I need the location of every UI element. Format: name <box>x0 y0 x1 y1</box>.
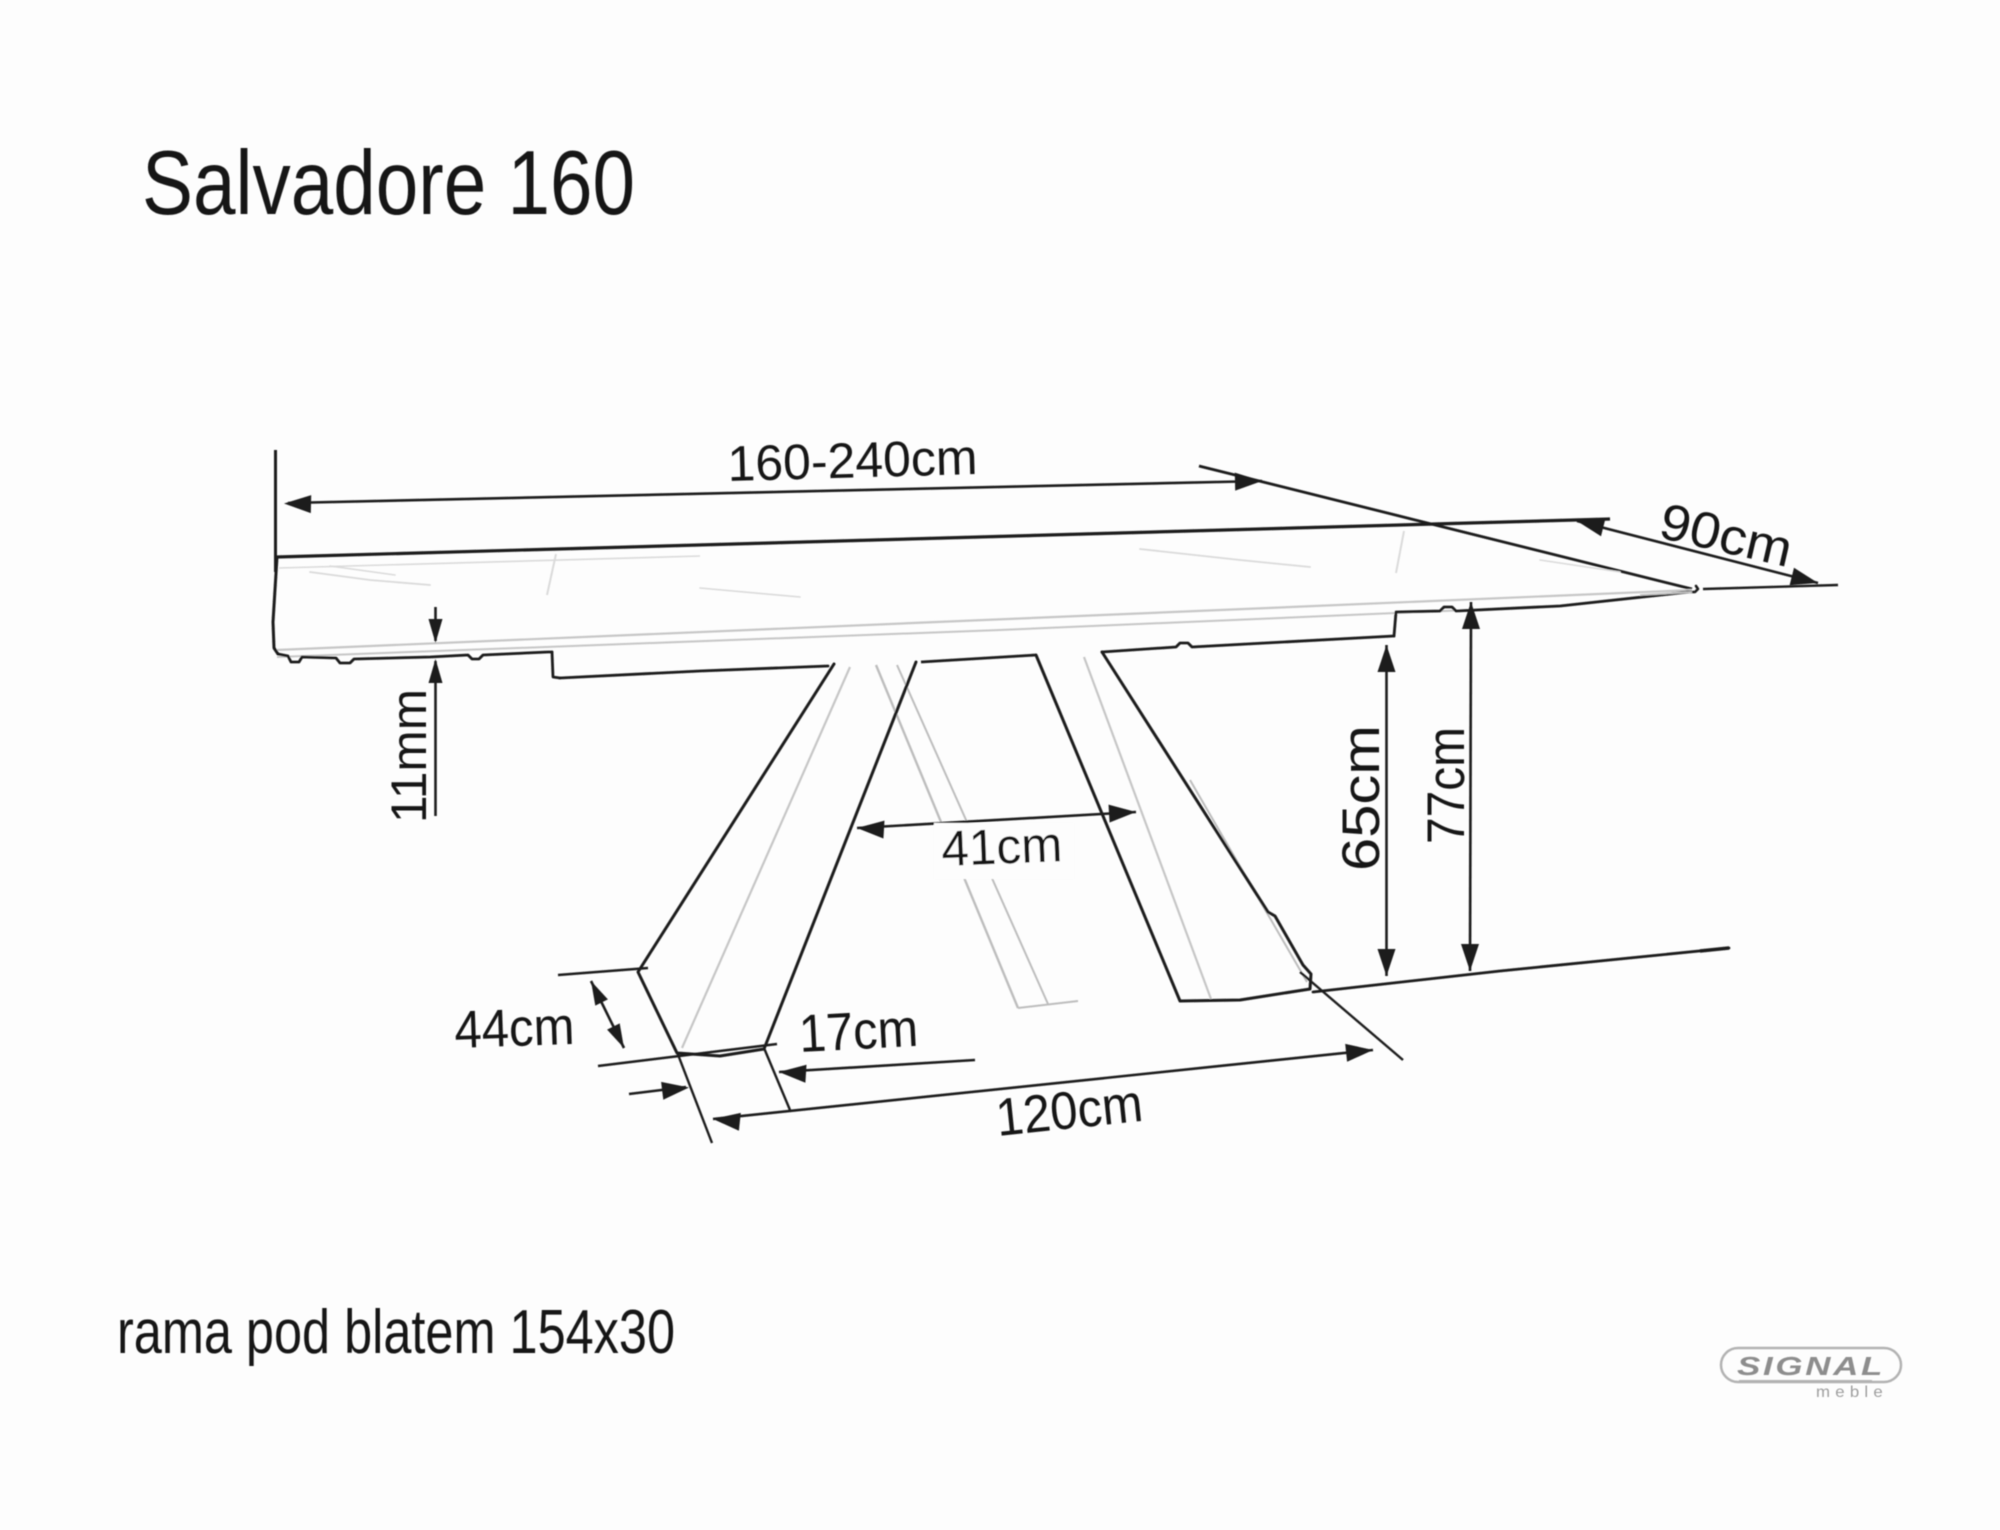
svg-text:17cm: 17cm <box>798 999 920 1064</box>
svg-text:120cm: 120cm <box>993 1074 1145 1148</box>
svg-text:65cm: 65cm <box>1332 725 1391 871</box>
svg-text:160-240cm: 160-240cm <box>727 429 978 492</box>
svg-text:SIGNAL: SIGNAL <box>1737 1351 1885 1381</box>
svg-text:11mm: 11mm <box>381 689 437 823</box>
svg-text:Salvadore 160: Salvadore 160 <box>142 133 635 234</box>
svg-text:90cm: 90cm <box>1655 492 1798 578</box>
svg-text:41cm: 41cm <box>940 816 1063 877</box>
svg-text:77cm: 77cm <box>1417 727 1476 844</box>
svg-text:44cm: 44cm <box>453 997 575 1060</box>
svg-text:meble: meble <box>1816 1384 1888 1401</box>
svg-text:rama pod blatem 154x30: rama pod blatem 154x30 <box>117 1298 675 1367</box>
